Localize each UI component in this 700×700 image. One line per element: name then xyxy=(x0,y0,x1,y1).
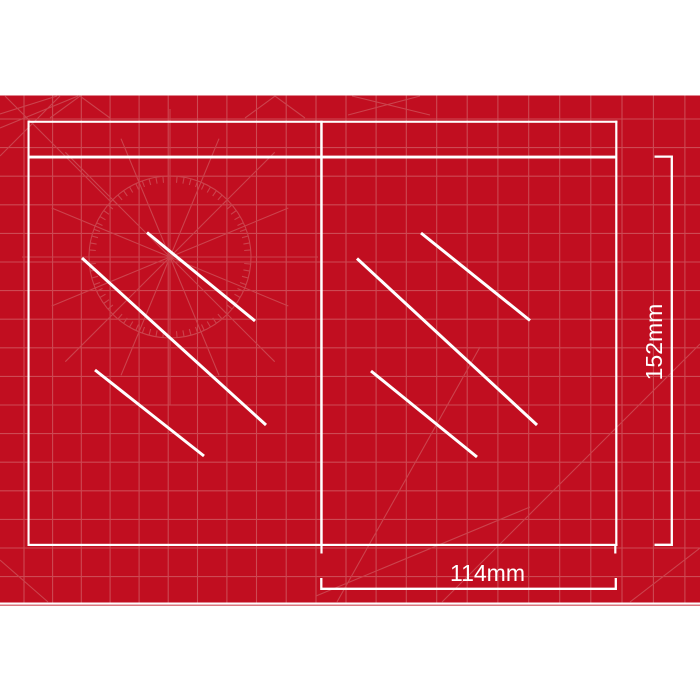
svg-text:152mm: 152mm xyxy=(641,304,667,381)
svg-text:114mm: 114mm xyxy=(450,560,525,586)
